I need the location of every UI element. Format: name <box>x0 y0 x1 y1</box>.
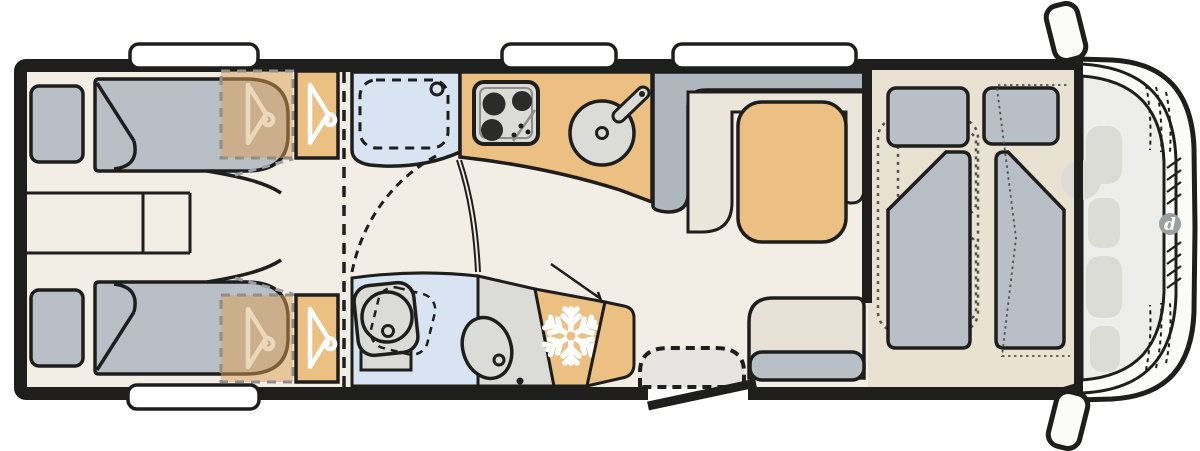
pillow <box>31 290 83 366</box>
pillow <box>984 88 1058 144</box>
cab-seat-faded <box>1088 198 1120 248</box>
cab-partition-wall <box>862 66 872 303</box>
burner <box>512 91 532 111</box>
hob-knob <box>512 133 517 138</box>
sink-drain <box>597 128 608 139</box>
wing-mirror-icon <box>1044 1 1089 63</box>
wardrobe-overlay-top <box>221 71 293 158</box>
floorplan-canvas: d <box>0 0 1200 451</box>
entry-step-dashed <box>640 348 744 387</box>
window-top-dinette <box>673 44 856 68</box>
logo-letter: d <box>1164 215 1176 235</box>
hob-knob <box>519 124 524 129</box>
window-bottom-rear <box>128 385 259 409</box>
bench-seat <box>750 352 864 380</box>
window-top-kitchen <box>502 44 616 68</box>
toilet-flush <box>383 326 394 337</box>
pillow <box>31 86 83 162</box>
faucet-tip <box>639 91 645 97</box>
basin-tap-dot <box>517 378 524 385</box>
hob-3-burner-icon <box>474 82 538 144</box>
basin-drain <box>494 355 504 365</box>
cab-front-wall <box>1074 59 1083 400</box>
manufacturer-logo: d <box>1159 213 1181 235</box>
cab-seat-faded <box>1090 326 1120 372</box>
window-top-rear <box>130 44 258 68</box>
burner <box>483 93 506 116</box>
cab-seat-faded <box>1086 256 1122 318</box>
shower-cubicle <box>352 72 460 166</box>
pillow <box>888 88 968 146</box>
driver-cab-front: d <box>1061 59 1195 400</box>
burner <box>481 119 503 141</box>
wardrobe-overlay-bottom <box>221 295 293 382</box>
motorhome-floorplan: d <box>0 0 1200 451</box>
hob-knob <box>526 130 531 135</box>
cab-seat-faded <box>1086 126 1122 184</box>
dinette-table <box>738 102 846 242</box>
